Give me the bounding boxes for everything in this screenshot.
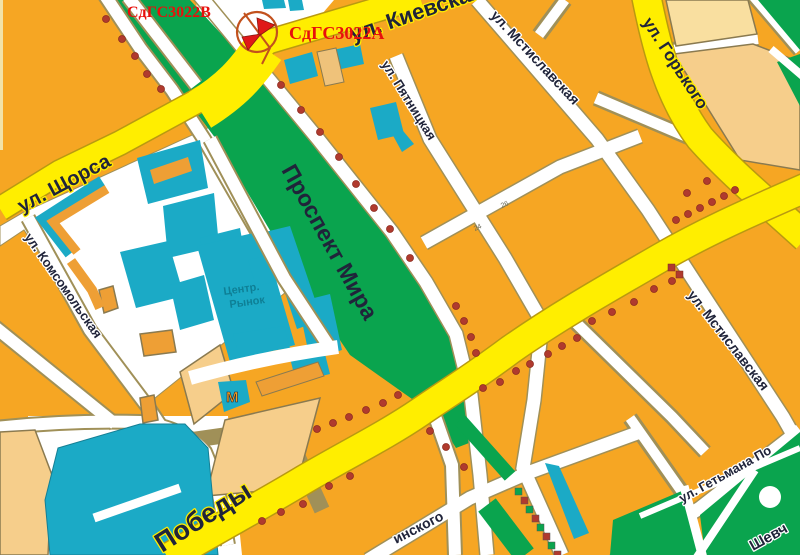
svg-text:М: М xyxy=(226,389,239,406)
svg-text:СдГС3022В: СдГС3022В xyxy=(127,4,211,21)
svg-text:СдГС3022А: СдГС3022А xyxy=(289,23,384,43)
